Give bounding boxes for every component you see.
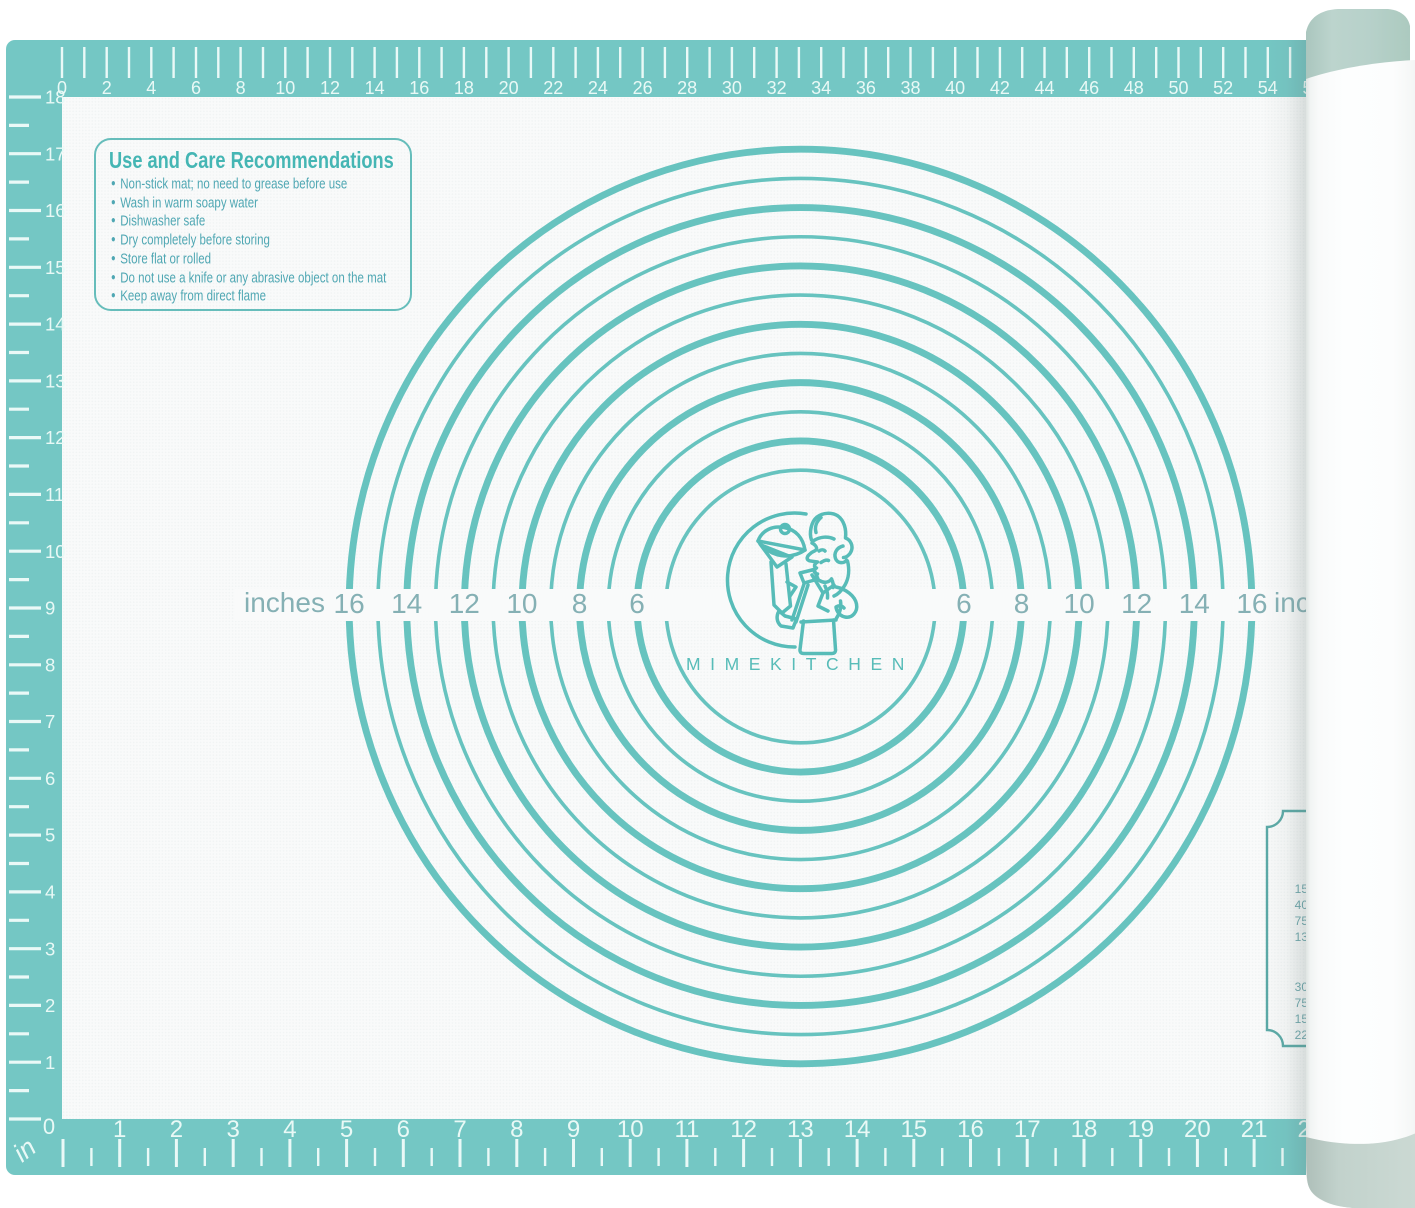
svg-text:10: 10 xyxy=(45,541,66,562)
svg-text:in: in xyxy=(7,1132,41,1168)
svg-text:14: 14 xyxy=(844,1116,871,1143)
svg-text:13: 13 xyxy=(787,1116,814,1143)
svg-text:4: 4 xyxy=(283,1116,296,1143)
svg-text:3: 3 xyxy=(227,1116,240,1143)
svg-text:42: 42 xyxy=(990,78,1010,98)
svg-text:16: 16 xyxy=(409,78,429,98)
svg-text:10: 10 xyxy=(506,588,537,619)
svg-text:17: 17 xyxy=(45,143,66,164)
svg-text:17: 17 xyxy=(1014,1116,1041,1143)
svg-text:12: 12 xyxy=(320,78,340,98)
svg-text:28: 28 xyxy=(677,78,697,98)
svg-text:16: 16 xyxy=(45,200,66,221)
svg-text:30: 30 xyxy=(722,78,742,98)
svg-text:8: 8 xyxy=(236,78,246,98)
svg-text:12: 12 xyxy=(1121,588,1152,619)
svg-text:4: 4 xyxy=(146,78,156,98)
svg-text:12: 12 xyxy=(449,588,480,619)
svg-text:7: 7 xyxy=(453,1116,466,1143)
svg-text:12: 12 xyxy=(45,427,66,448)
svg-text:6: 6 xyxy=(629,588,645,619)
svg-text:5: 5 xyxy=(45,825,55,846)
svg-text:MIMEKITCHEN: MIMEKITCHEN xyxy=(686,654,914,674)
svg-text:44: 44 xyxy=(1034,78,1054,98)
svg-text:12: 12 xyxy=(730,1116,757,1143)
svg-text:0: 0 xyxy=(43,1114,55,1139)
svg-text:16: 16 xyxy=(334,588,365,619)
svg-text:6: 6 xyxy=(191,78,201,98)
svg-text:36: 36 xyxy=(856,78,876,98)
svg-text:32: 32 xyxy=(767,78,787,98)
svg-text:20: 20 xyxy=(1184,1116,1211,1143)
svg-text:11: 11 xyxy=(45,484,64,505)
svg-text:15: 15 xyxy=(900,1116,927,1143)
svg-text:8: 8 xyxy=(1014,588,1030,619)
svg-text:8: 8 xyxy=(45,654,55,675)
svg-text:10: 10 xyxy=(275,78,295,98)
svg-text:2: 2 xyxy=(102,78,112,98)
svg-text:26: 26 xyxy=(633,78,653,98)
svg-text:38: 38 xyxy=(900,78,920,98)
svg-text:9: 9 xyxy=(567,1116,580,1143)
svg-text:14: 14 xyxy=(391,588,422,619)
svg-text:6: 6 xyxy=(397,1116,410,1143)
svg-text:8: 8 xyxy=(572,588,588,619)
svg-text:7: 7 xyxy=(45,711,55,732)
svg-text:50: 50 xyxy=(1168,78,1188,98)
svg-text:13: 13 xyxy=(45,371,66,392)
svg-text:18: 18 xyxy=(1071,1116,1098,1143)
svg-text:15: 15 xyxy=(45,257,66,278)
svg-text:19: 19 xyxy=(1127,1116,1154,1143)
svg-text:11: 11 xyxy=(674,1116,699,1143)
svg-text:3: 3 xyxy=(45,938,55,959)
svg-text:10: 10 xyxy=(617,1116,644,1143)
svg-text:6: 6 xyxy=(956,588,972,619)
svg-text:34: 34 xyxy=(811,78,831,98)
svg-text:4: 4 xyxy=(45,882,55,903)
svg-text:1: 1 xyxy=(45,1052,55,1073)
svg-text:24: 24 xyxy=(588,78,608,98)
svg-text:5: 5 xyxy=(340,1116,353,1143)
svg-text:48: 48 xyxy=(1124,78,1144,98)
svg-text:40: 40 xyxy=(945,78,965,98)
svg-text:18: 18 xyxy=(454,78,474,98)
svg-text:18: 18 xyxy=(45,87,66,108)
svg-text:2: 2 xyxy=(45,995,55,1016)
svg-text:46: 46 xyxy=(1079,78,1099,98)
svg-text:1: 1 xyxy=(113,1116,126,1143)
svg-text:16: 16 xyxy=(957,1116,984,1143)
svg-text:2: 2 xyxy=(170,1116,183,1143)
svg-text:inches: inches xyxy=(244,587,325,618)
svg-text:14: 14 xyxy=(1179,588,1210,619)
svg-text:10: 10 xyxy=(1064,588,1095,619)
svg-text:52: 52 xyxy=(1213,78,1233,98)
svg-text:22: 22 xyxy=(543,78,563,98)
svg-text:14: 14 xyxy=(365,78,385,98)
svg-text:14: 14 xyxy=(45,314,66,335)
svg-text:9: 9 xyxy=(45,598,55,619)
svg-text:20: 20 xyxy=(499,78,519,98)
svg-text:6: 6 xyxy=(45,768,55,789)
svg-text:8: 8 xyxy=(510,1116,523,1143)
